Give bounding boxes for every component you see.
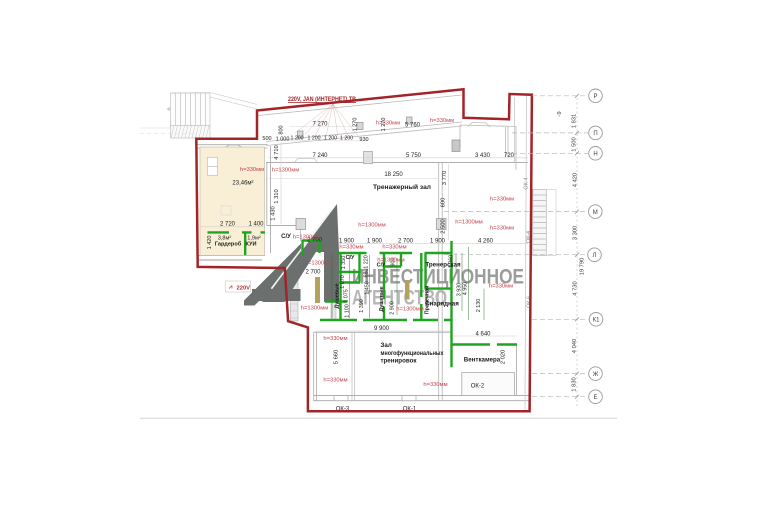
svg-text:2 020: 2 020 xyxy=(501,350,507,365)
svg-text:ОК-4: ОК-4 xyxy=(524,177,530,189)
svg-text:5 750: 5 750 xyxy=(406,153,422,159)
svg-text:h=330мм: h=330мм xyxy=(376,121,400,127)
svg-text:5 760: 5 760 xyxy=(405,123,421,129)
svg-text:М: М xyxy=(593,210,598,216)
svg-text:720: 720 xyxy=(504,153,515,159)
svg-text:3 430: 3 430 xyxy=(475,153,491,159)
svg-text:5 660: 5 660 xyxy=(334,350,340,365)
svg-text:ОК-2: ОК-2 xyxy=(471,384,485,390)
svg-text:h=330мм: h=330мм xyxy=(382,245,406,251)
svg-text:h=330мм: h=330мм xyxy=(339,245,363,251)
svg-text:1 360: 1 360 xyxy=(449,255,455,269)
svg-text:h=330мм: h=330мм xyxy=(323,378,347,384)
svg-text:1 400: 1 400 xyxy=(248,222,264,228)
svg-text:220V, JAN (ИНТЕРНЕТ) ТВ: 220V, JAN (ИНТЕРНЕТ) ТВ xyxy=(288,96,356,103)
svg-text:7 240: 7 240 xyxy=(312,153,328,159)
svg-text:2 720: 2 720 xyxy=(220,222,236,228)
svg-text:h=1300мм: h=1300мм xyxy=(377,258,404,264)
svg-text:1 430: 1 430 xyxy=(271,206,277,221)
svg-text:23,46м²: 23,46м² xyxy=(232,181,253,187)
svg-text:1 000: 1 000 xyxy=(276,137,290,143)
svg-text:2 500: 2 500 xyxy=(441,219,447,234)
svg-text:К1: К1 xyxy=(593,318,600,324)
svg-text:Душевые: Душевые xyxy=(379,286,385,311)
svg-text:h=330мм: h=330мм xyxy=(490,226,514,232)
svg-text:1 830: 1 830 xyxy=(572,377,578,392)
svg-text:220V: 220V xyxy=(237,286,251,292)
svg-text:4 950: 4 950 xyxy=(463,282,469,296)
svg-text:Гардероб: Гардероб xyxy=(215,241,242,248)
svg-text:2 700: 2 700 xyxy=(305,270,321,276)
svg-text:h=1300мм: h=1300мм xyxy=(396,307,423,313)
svg-text:1 200: 1 200 xyxy=(291,136,304,142)
svg-text:тренировок: тренировок xyxy=(381,358,418,365)
svg-text:h=330мм: h=330мм xyxy=(323,336,347,342)
svg-text:Р: Р xyxy=(593,94,597,100)
svg-text:1 100: 1 100 xyxy=(345,304,351,318)
svg-text:h=1300мм: h=1300мм xyxy=(272,168,299,174)
svg-text:2 130: 2 130 xyxy=(476,299,482,313)
svg-text:Ж: Ж xyxy=(593,372,599,378)
svg-text:680: 680 xyxy=(364,269,370,278)
svg-text:1 831: 1 831 xyxy=(572,114,578,129)
svg-text:С/У: С/У xyxy=(346,255,355,261)
svg-text:3 770: 3 770 xyxy=(442,171,448,186)
svg-text:4 040: 4 040 xyxy=(572,339,578,354)
svg-text:С/У: С/У xyxy=(281,234,291,240)
svg-text:-9: -9 xyxy=(557,111,563,116)
svg-text:600: 600 xyxy=(441,198,447,208)
svg-text:Л: Л xyxy=(593,253,597,259)
svg-text:2 900: 2 900 xyxy=(390,301,396,315)
svg-text:4 420: 4 420 xyxy=(573,173,579,188)
svg-text:h=330мм: h=330мм xyxy=(430,118,454,124)
svg-text:1 075: 1 075 xyxy=(344,289,350,303)
svg-text:4 640: 4 640 xyxy=(475,332,491,338)
svg-text:h=330мм: h=330мм xyxy=(489,284,513,290)
svg-text:9 900: 9 900 xyxy=(374,326,390,332)
svg-text:1 450: 1 450 xyxy=(365,281,371,295)
svg-text:Н: Н xyxy=(593,152,597,158)
svg-text:1 270: 1 270 xyxy=(353,118,359,132)
svg-text:1 900: 1 900 xyxy=(430,239,446,245)
svg-text:h=1300мм: h=1300мм xyxy=(301,306,328,312)
svg-text:1 070: 1 070 xyxy=(340,275,346,289)
svg-text:1 350: 1 350 xyxy=(341,256,347,270)
svg-text:h=330мм: h=330мм xyxy=(240,167,264,173)
svg-text:многофункциональных: многофункциональных xyxy=(381,350,444,357)
svg-text:1 390: 1 390 xyxy=(359,299,365,313)
svg-text:Зал: Зал xyxy=(381,342,392,349)
svg-text:КУИ: КУИ xyxy=(245,242,256,248)
svg-text:Венткамера: Венткамера xyxy=(464,357,501,364)
svg-text:800: 800 xyxy=(279,125,285,134)
svg-text:h=330мм: h=330мм xyxy=(490,197,514,203)
svg-text:Тренерская: Тренерская xyxy=(425,262,461,269)
svg-text:h=1300мм: h=1300мм xyxy=(293,235,320,241)
svg-text:h=1300мм: h=1300мм xyxy=(305,261,332,267)
svg-text:Е: Е xyxy=(593,395,597,401)
svg-text:3 300: 3 300 xyxy=(573,226,579,241)
svg-text:930: 930 xyxy=(359,137,368,143)
svg-text:4 710: 4 710 xyxy=(274,145,280,160)
svg-text:1 900: 1 900 xyxy=(367,239,383,245)
svg-text:1 310: 1 310 xyxy=(274,189,280,204)
svg-text:Снарядная: Снарядная xyxy=(425,301,459,308)
svg-text:19 790: 19 790 xyxy=(580,258,586,276)
svg-text:1 500: 1 500 xyxy=(572,137,578,152)
svg-text:500: 500 xyxy=(262,136,271,142)
svg-text:П: П xyxy=(593,131,597,137)
svg-text:1 420: 1 420 xyxy=(207,236,213,250)
svg-text:h=1300мм: h=1300мм xyxy=(358,223,385,229)
svg-text:4 260: 4 260 xyxy=(478,239,494,245)
svg-text:1 200: 1 200 xyxy=(308,136,321,142)
svg-text:Тренажерный зал: Тренажерный зал xyxy=(373,183,431,191)
svg-text:h=1300мм: h=1300мм xyxy=(455,220,482,226)
svg-text:18 250: 18 250 xyxy=(384,172,403,178)
svg-text:h=330мм: h=330мм xyxy=(423,382,447,388)
svg-text:1 200: 1 200 xyxy=(340,136,353,142)
svg-text:4 730: 4 730 xyxy=(573,281,579,296)
svg-text:1 220: 1 220 xyxy=(364,255,370,269)
